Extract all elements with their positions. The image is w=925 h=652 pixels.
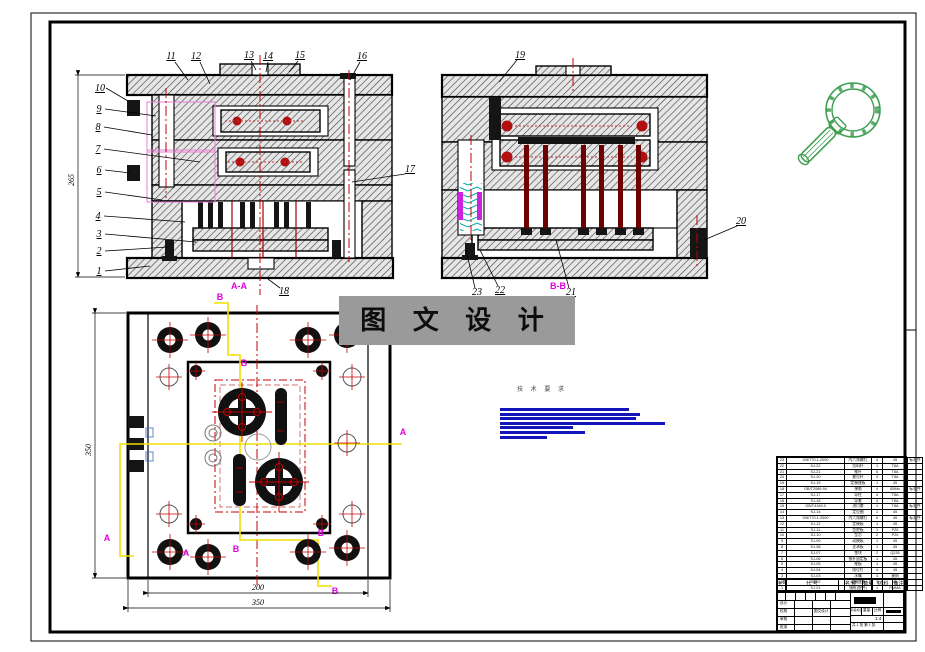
bom-cell-name: 内六角螺钉 xyxy=(845,458,872,464)
bom-header-name: 名 称 xyxy=(839,579,863,590)
drawing-sheet: 265 A-A xyxy=(0,0,925,647)
section-label-bb: B-B xyxy=(550,281,566,291)
callout-17: 17 xyxy=(405,164,416,175)
callout-18: 18 xyxy=(279,286,289,297)
bom-header-no: 序号 xyxy=(777,579,786,590)
callout-12: 12 xyxy=(191,51,201,62)
cavity-handle-2 xyxy=(275,388,287,445)
section-label-aa: A-A xyxy=(231,281,247,291)
titleblock-check-label: 校核 xyxy=(780,610,787,614)
callout-2: 2 xyxy=(97,246,102,257)
bom-header-remark: 备注 xyxy=(893,579,904,590)
callout-4: 4 xyxy=(96,211,101,222)
tech-requirements-label: 技 术 要 求 xyxy=(517,384,567,393)
callout-3: 3 xyxy=(96,229,102,240)
redacted-line xyxy=(500,408,629,411)
callout-8: 8 xyxy=(96,122,101,133)
redacted-line xyxy=(500,426,573,429)
parts-list-table: 23 GB/T70.1-2000 内六角螺钉 4 45 标准件 22 SJ-22… xyxy=(776,456,907,591)
svg-text:350: 350 xyxy=(84,444,93,457)
bom-header-material: 材 料 xyxy=(873,579,893,590)
svg-text:350: 350 xyxy=(251,598,264,607)
title-block: 设计 校核 审核 批准 图文设计 阶段标记 重量 比例 1:4 共 1 张 第 … xyxy=(776,591,905,632)
core-insert-plate xyxy=(188,362,330,533)
bom-header-code: 代 号 xyxy=(786,579,839,590)
callout-11: 11 xyxy=(166,51,175,62)
titleblock-design-label: 设计 xyxy=(780,602,787,606)
magnifier-part-icon xyxy=(796,83,880,167)
redacted-drawing-number xyxy=(854,597,876,604)
titleblock-stage-label: 阶段标记 xyxy=(851,609,862,612)
label-b: B xyxy=(233,544,240,554)
titleblock-org: 图文设计 xyxy=(814,610,828,614)
label-b: B xyxy=(241,358,248,368)
redacted-line xyxy=(500,422,665,425)
callout-1: 1 xyxy=(97,266,102,277)
bom-cell-name: 内六角螺钉 xyxy=(845,515,872,521)
callout-15: 15 xyxy=(295,50,305,61)
callout-5: 5 xyxy=(97,187,102,198)
label-b: B xyxy=(332,586,339,596)
callout-10: 10 xyxy=(95,83,105,94)
callout-19: 19 xyxy=(515,50,525,61)
svg-text:265: 265 xyxy=(67,174,76,186)
titleblock-weight-label: 重量 xyxy=(863,609,870,613)
label-b: B xyxy=(318,528,325,538)
callout-7: 7 xyxy=(96,144,102,155)
titleblock-scale-value: 1:4 xyxy=(875,617,881,622)
watermark-banner: 图 文 设 计 xyxy=(339,296,575,345)
bom-cell-name: 推杆固定板 xyxy=(845,556,872,562)
parts-list-header: 序号 代 号 名 称 数量 材 料 备注 xyxy=(776,578,905,591)
parts-list-body: 23 GB/T70.1-2000 内六角螺钉 4 45 标准件 22 SJ-22… xyxy=(778,458,923,591)
callout-13: 13 xyxy=(244,50,254,61)
callout-16: 16 xyxy=(357,51,367,62)
bom-cell-remark: 标准件 xyxy=(908,515,923,521)
svg-text:200: 200 xyxy=(252,583,264,592)
redacted-line xyxy=(500,417,636,420)
titleblock-audit-label: 审核 xyxy=(780,618,787,622)
view-section-bb: B-B xyxy=(442,58,707,291)
callout-20: 20 xyxy=(736,216,746,227)
bom-cell-remark: 标准件 xyxy=(908,458,923,464)
titleblock-approve-label: 批准 xyxy=(780,626,787,630)
view-section-aa: 265 A-A xyxy=(67,55,393,295)
callout-22: 22 xyxy=(495,285,505,296)
bom-cell-remark: 标准件 xyxy=(908,504,923,510)
redacted-line xyxy=(500,413,640,416)
redacted-line xyxy=(500,431,585,434)
callout-6: 6 xyxy=(97,165,102,176)
label-a: A xyxy=(400,427,407,437)
titleblock-scale-label: 比例 xyxy=(874,609,881,613)
callout-9: 9 xyxy=(97,104,102,115)
bom-header-qty: 数量 xyxy=(863,579,873,590)
redacted-line xyxy=(500,436,547,439)
callout-14: 14 xyxy=(263,51,273,62)
label-a: A xyxy=(183,548,190,558)
cavity-handle-1 xyxy=(233,454,246,506)
label-a: A xyxy=(104,533,111,543)
label-b: B xyxy=(217,292,224,302)
bom-cell-remark: 标准件 xyxy=(908,486,923,492)
redacted-text-lines xyxy=(500,408,665,440)
bom-cell-remark xyxy=(908,585,923,591)
titleblock-sheet-count: 共 1 张 第 1 张 xyxy=(852,624,875,628)
